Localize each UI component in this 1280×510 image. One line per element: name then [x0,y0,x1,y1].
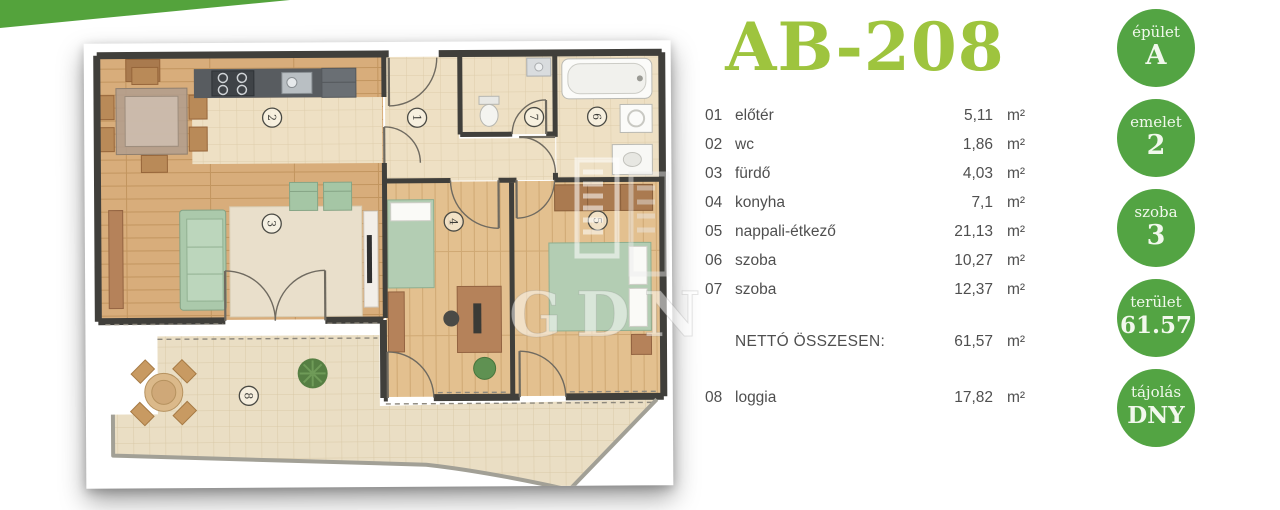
total-label: NETTÓ ÖSSZESEN: [735,333,927,351]
table-row: 07 szoba 12,37 m² [705,281,1037,297]
row-unit: m² [1007,252,1037,270]
badge-label: emelet [1117,114,1195,131]
info-panel: AB-208 [690,0,1040,90]
room-table: 01 előtér 5,11 m² 02 wc 1,86 m² 03 fürdő… [705,107,1037,418]
badge-label: épület [1117,24,1195,41]
plan-room-number: 8 [242,392,255,399]
table-row: 01 előtér 5,11 m² [705,107,1037,123]
row-value: 12,37 [927,281,993,299]
badge-value: DNY [1117,401,1195,431]
row-name: wc [735,136,927,154]
plan-room-number: 2 [265,114,278,121]
row-name: konyha [735,194,927,212]
plan-room-number: 1 [410,114,423,121]
badge-floor: emelet 2 [1117,99,1195,177]
row-number: 05 [705,223,735,241]
total-unit: m² [1007,333,1037,351]
nightstand [631,334,651,354]
row-number: 02 [705,136,735,154]
row-value: 1,86 [927,136,993,154]
row-name: nappali-étkező [735,223,927,241]
single-bed [388,200,435,288]
row-unit: m² [1007,136,1037,154]
wc-sink [527,58,551,76]
wardrobe [555,184,653,211]
row-number: 08 [705,389,735,407]
plant-small [474,357,496,379]
row-number: 07 [705,281,735,299]
table-row: 05 nappali-étkező 21,13 m² [705,223,1037,239]
row-value: 10,27 [927,252,993,270]
rug [230,206,363,317]
table-row: 02 wc 1,86 m² [705,136,1037,152]
row-value: 7,1 [927,194,993,212]
table-row: 03 fürdő 4,03 m² [705,165,1037,181]
kitchen-counter [194,68,356,98]
total-row: NETTÓ ÖSSZESEN: 61,57 m² [705,333,1037,349]
plant-loggia [298,358,328,388]
row-name: szoba [735,281,927,299]
badge-value: 2 [1117,131,1195,161]
badge-label: szoba [1117,204,1195,221]
toilet [479,96,499,126]
row-unit: m² [1007,389,1037,407]
double-bed [549,242,652,331]
floorplan-svg: 1 2 3 4 5 6 7 8 [84,40,674,489]
badge-value: 61.57 [1117,311,1195,341]
bathroom-vanity [612,144,652,174]
floorplan-image: 1 2 3 4 5 6 7 8 [84,40,674,489]
row-value: 17,82 [927,389,993,407]
table-row: 06 szoba 10,27 m² [705,252,1037,268]
row-number: 01 [705,107,735,125]
row-name: szoba [735,252,927,270]
row-unit: m² [1007,281,1037,299]
badge-area: terület 61.57 [1117,279,1195,357]
table-row: 04 konyha 7,1 m² [705,194,1037,210]
row-value: 5,11 [927,107,993,125]
plan-room-number: 4 [447,218,460,225]
corner-accent-wedge [0,0,290,28]
plan-room-number: 6 [590,113,603,120]
badge-label: terület [1117,294,1195,311]
row-unit: m² [1007,223,1037,241]
sideboard [109,211,124,309]
unit-title: AB-208 [690,4,1040,90]
row-unit: m² [1007,165,1037,183]
badge-building: épület A [1117,9,1195,87]
row-name: loggia [735,389,927,407]
badge-value: A [1117,41,1195,71]
plan-room-number: 3 [265,220,278,227]
row-name: előtér [735,107,927,125]
dresser [388,292,404,352]
plan-room-number: 5 [591,217,604,224]
total-value: 61,57 [927,333,993,351]
row-unit: m² [1007,194,1037,212]
badge-label: tájolás [1117,384,1195,401]
badge-value: 3 [1117,221,1195,251]
washing-machine [620,104,652,132]
tv-stand [364,211,379,307]
badge-rooms: szoba 3 [1117,189,1195,267]
row-value: 21,13 [927,223,993,241]
row-unit: m² [1007,107,1037,125]
row-number: 03 [705,165,735,183]
row-number: 06 [705,252,735,270]
bathtub [562,58,652,99]
plan-room-number: 7 [527,114,540,121]
row-number: 04 [705,194,735,212]
table-row: 08 loggia 17,82 m² [705,389,1037,405]
badge-orientation: tájolás DNY [1117,369,1195,447]
sofa [180,210,227,310]
row-value: 4,03 [927,165,993,183]
row-name: fürdő [735,165,927,183]
